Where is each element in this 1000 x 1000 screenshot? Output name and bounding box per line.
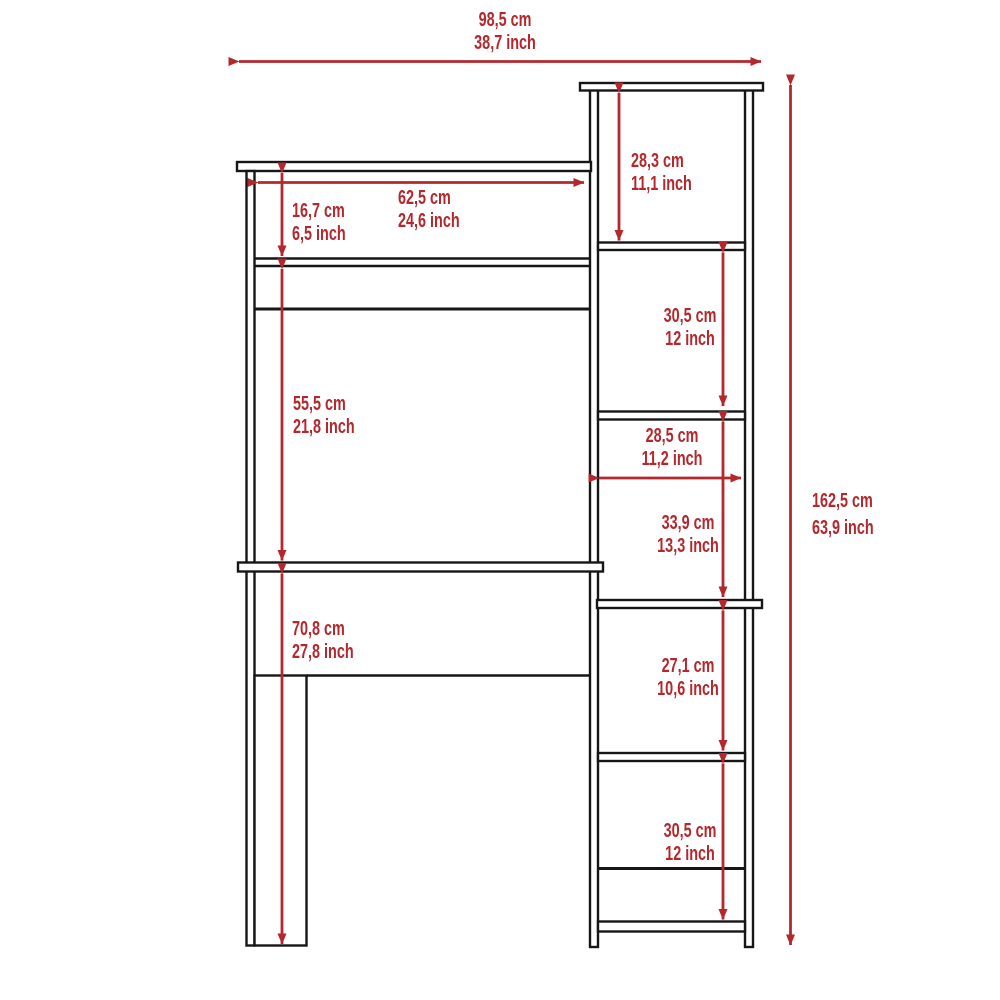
dimension-value-cm: 30,5 cm: [640, 820, 741, 843]
dimension-label-total-height: 162,5 cm 63,9 inch: [812, 488, 874, 542]
bookcase-bottom-shelf: [598, 922, 745, 932]
bookcase-shelf-1: [598, 243, 745, 251]
hutch-top-board: [237, 162, 591, 171]
bookcase-right-wall: [745, 90, 753, 947]
dimension-diagram: 98,5 cm 38,7 inch 162,5 cm 63,9 inch 62,…: [0, 0, 1000, 1000]
dimension-value-cm: 62,5 cm: [398, 187, 460, 210]
bookcase-shelf-3-protruding: [597, 600, 762, 608]
dimension-label-cubby-5: 30,5 cm 12 inch: [640, 820, 741, 866]
dimension-label-bookcase-width: 28,5 cm 11,2 inch: [622, 425, 723, 471]
dimension-value-cm: 28,3 cm: [631, 150, 692, 173]
bookcase-shelf-2: [598, 412, 745, 420]
dimension-label-cubby-3: 33,9 cm 13,3 inch: [638, 512, 739, 558]
dimension-label-hutch-top-height: 16,7 cm 6,5 inch: [292, 200, 346, 246]
dimension-value-inch: 63,9 inch: [812, 515, 874, 542]
bookcase-shelf-4: [598, 753, 745, 761]
dimension-value-inch: 27,8 inch: [292, 641, 354, 664]
dimension-value-inch: 21,8 inch: [293, 416, 355, 439]
dimension-label-desk-clearance: 70,8 cm 27,8 inch: [292, 618, 354, 664]
dimension-value-cm: 16,7 cm: [292, 200, 346, 223]
dimension-value-inch: 11,1 inch: [631, 173, 692, 196]
desk-surface: [238, 563, 603, 572]
bookcase-left-wall: [590, 90, 598, 947]
dimension-value-cm: 27,1 cm: [638, 655, 739, 678]
dimension-label-cubby-1: 28,3 cm 11,1 inch: [631, 150, 692, 196]
dimension-label-cubby-2: 30,5 cm 12 inch: [640, 305, 741, 351]
dimension-value-inch: 12 inch: [640, 843, 741, 866]
dimension-label-total-width: 98,5 cm 38,7 inch: [455, 9, 556, 55]
dimension-value-cm: 55,5 cm: [293, 393, 355, 416]
dimension-value-cm: 162,5 cm: [812, 488, 874, 515]
dimension-value-cm: 98,5 cm: [455, 9, 556, 32]
dimension-value-cm: 30,5 cm: [640, 305, 741, 328]
dimension-value-inch: 10,6 inch: [638, 678, 739, 701]
bookcase-top-board: [580, 83, 763, 91]
dimension-value-inch: 12 inch: [640, 328, 741, 351]
dimension-value-inch: 11,2 inch: [622, 448, 723, 471]
dimension-value-cm: 33,9 cm: [638, 512, 739, 535]
dimension-value-inch: 6,5 inch: [292, 223, 346, 246]
dimension-value-inch: 13,3 inch: [638, 535, 739, 558]
dimension-value-inch: 38,7 inch: [455, 32, 556, 55]
dimension-label-hutch-width: 62,5 cm 24,6 inch: [398, 187, 460, 233]
dimension-arrows: [239, 62, 791, 946]
desk-left-leg: [255, 676, 307, 946]
dimension-label-cubby-4: 27,1 cm 10,6 inch: [638, 655, 739, 701]
dimension-label-hutch-mid-height: 55,5 cm 21,8 inch: [293, 393, 355, 439]
dimension-value-cm: 28,5 cm: [622, 425, 723, 448]
dimension-value-inch: 24,6 inch: [398, 210, 460, 233]
dimension-value-cm: 70,8 cm: [292, 618, 354, 641]
